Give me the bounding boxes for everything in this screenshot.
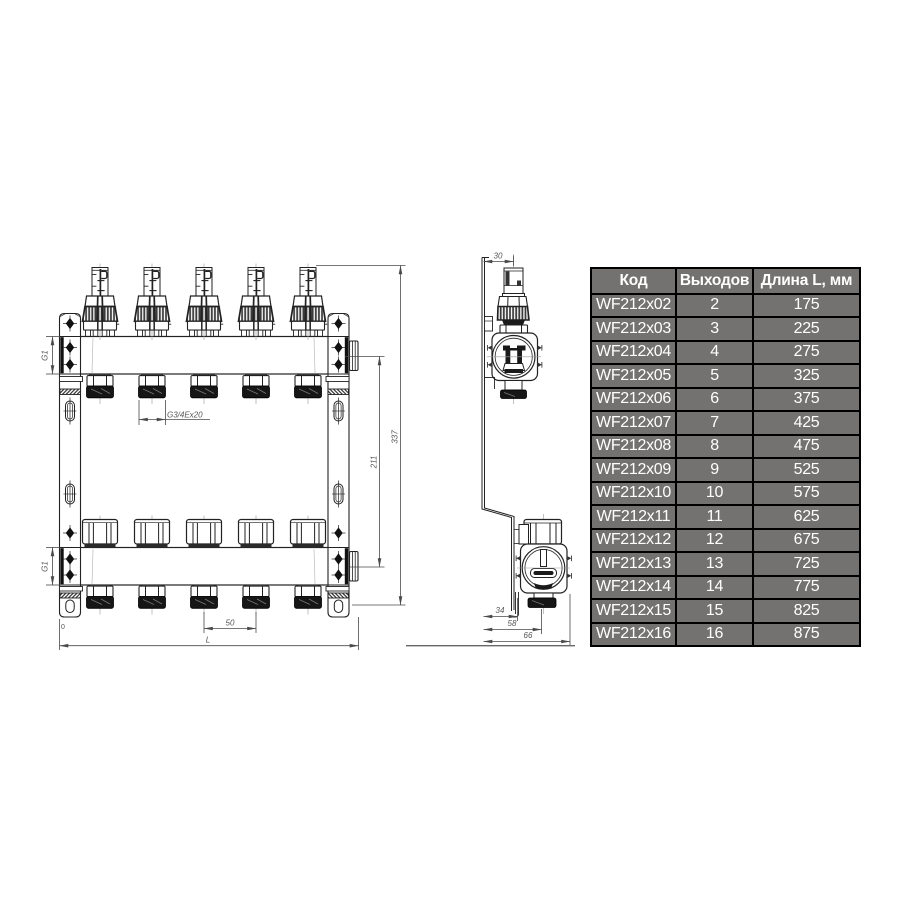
svg-text:G1: G1 bbox=[41, 350, 50, 361]
svg-text:30: 30 bbox=[494, 252, 503, 261]
svg-text:58: 58 bbox=[508, 619, 517, 628]
svg-text:337: 337 bbox=[391, 430, 400, 444]
svg-text:50: 50 bbox=[226, 619, 235, 628]
svg-text:G1: G1 bbox=[41, 561, 50, 572]
svg-text:0: 0 bbox=[61, 624, 65, 631]
svg-text:L: L bbox=[206, 636, 210, 645]
svg-text:G3/4Ex20: G3/4Ex20 bbox=[167, 411, 203, 420]
svg-text:34: 34 bbox=[496, 606, 505, 615]
svg-text:211: 211 bbox=[370, 456, 379, 470]
svg-text:66: 66 bbox=[524, 631, 533, 640]
